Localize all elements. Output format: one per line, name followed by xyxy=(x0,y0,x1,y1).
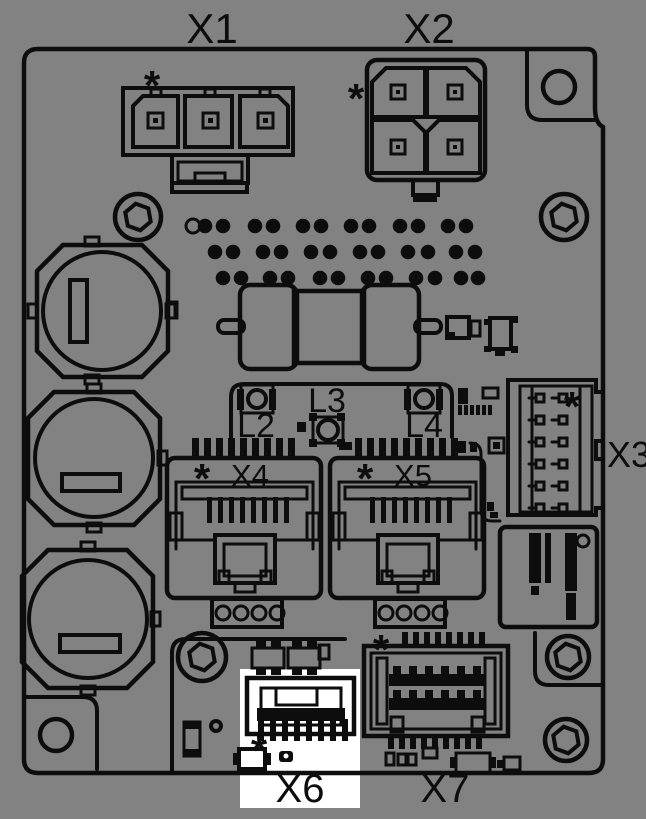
connector-x4-label: X4 xyxy=(231,458,269,493)
pcb-connector-diagram: L2 L3 L4 X1 * xyxy=(0,0,646,819)
pin1-marker-x5: * xyxy=(357,455,374,502)
connector-x2-label: X2 xyxy=(403,5,454,52)
pin1-marker-x4: * xyxy=(194,455,211,502)
pin1-marker-x1: * xyxy=(144,62,161,109)
connector-x1-label: X1 xyxy=(186,5,237,52)
connector-x3-label: X3 xyxy=(607,434,646,475)
led-l4-label: L4 xyxy=(405,407,443,445)
pin1-marker-x3: * xyxy=(564,383,581,430)
connector-x7-label: X7 xyxy=(421,767,470,811)
pin1-marker-x2: * xyxy=(348,75,365,122)
pin1-marker-x7: * xyxy=(373,626,390,673)
connector-x5-label: X5 xyxy=(394,458,432,493)
connector-x6-label: X6 xyxy=(276,767,325,811)
